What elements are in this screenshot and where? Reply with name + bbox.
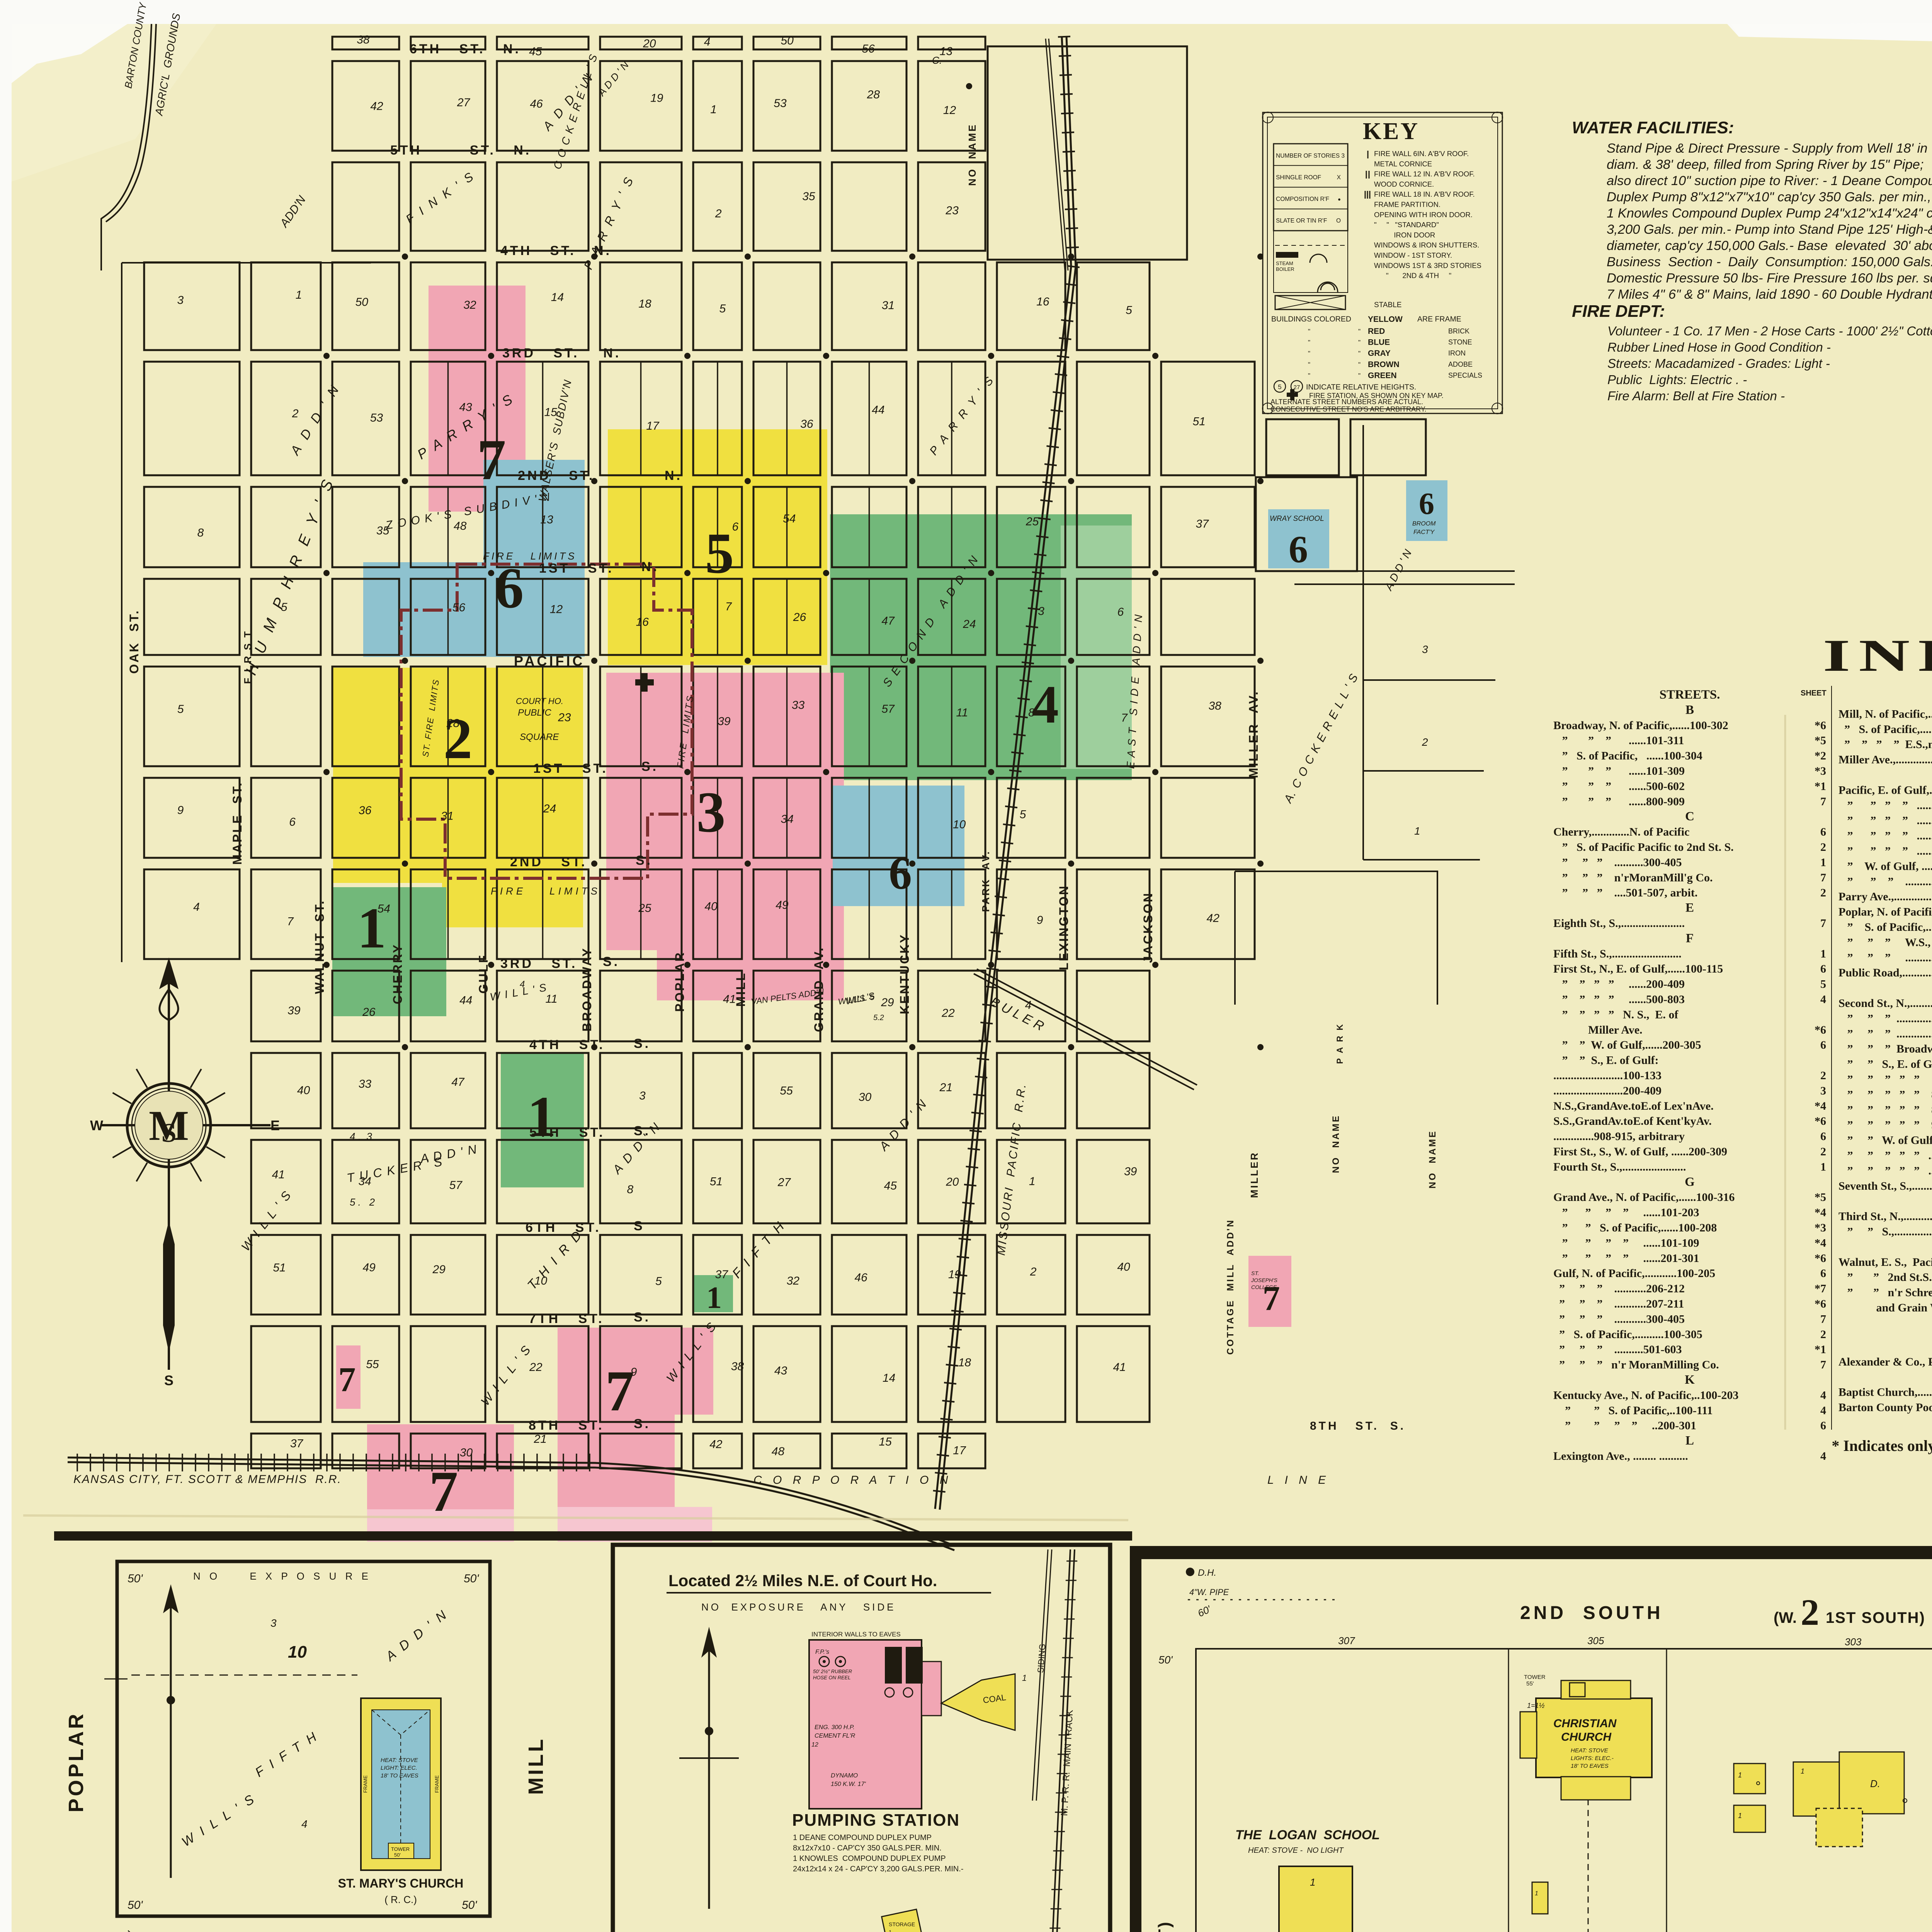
svg-text:6: 6 <box>1820 1419 1826 1432</box>
svg-text:54: 54 <box>783 512 796 525</box>
svg-text:First St., S., W. of Gulf, ...: First St., S., W. of Gulf, ......200-309 <box>1553 1145 1727 1158</box>
svg-text:COLLEGE: COLLEGE <box>1251 1284 1277 1290</box>
svg-text:29: 29 <box>881 996 894 1009</box>
svg-text:": " <box>1358 339 1361 346</box>
svg-text:STEAM: STEAM <box>1276 260 1293 266</box>
svg-text:5: 5 <box>1820 978 1826 991</box>
svg-text:” ” ” ” E.S.,n'rSeven: ” ” ” ” E.S.,n'rSeventhSt.S. <box>1838 738 1932 751</box>
svg-text:LIGHTS: ELEC.-: LIGHTS: ELEC.- <box>1571 1755 1614 1762</box>
svg-text:WALNUT (S. WALNUT): WALNUT (S. WALNUT) <box>1155 1920 1174 1932</box>
svg-text:": " <box>1358 361 1361 368</box>
svg-text:28: 28 <box>867 88 880 101</box>
svg-text:SLATE OR TIN R'F: SLATE OR TIN R'F <box>1276 218 1327 224</box>
svg-text:20: 20 <box>946 1175 959 1188</box>
svg-text:5: 5 <box>1126 304 1132 316</box>
svg-text:SHINGLE ROOF: SHINGLE ROOF <box>1276 174 1321 181</box>
svg-text:27: 27 <box>1294 384 1300 391</box>
svg-text:9: 9 <box>1037 914 1043 927</box>
svg-text:BUILDINGS COLORED: BUILDINGS COLORED <box>1271 315 1351 323</box>
svg-text:9: 9 <box>631 1366 637 1378</box>
svg-text:5: 5 <box>177 703 184 716</box>
svg-text:19: 19 <box>948 1268 961 1281</box>
svg-text:6: 6 <box>495 556 524 620</box>
svg-text:49: 49 <box>362 1261 376 1274</box>
svg-text:1: 1 <box>889 1929 892 1932</box>
svg-text:21: 21 <box>534 1433 547 1446</box>
svg-text:N.: N. <box>665 468 682 483</box>
svg-text:7: 7 <box>1820 917 1826 930</box>
svg-text:3,200 Gals. per min.- Pump int: 3,200 Gals. per min.- Pump into Stand Pi… <box>1607 222 1932 237</box>
svg-text:18' TO EAVES: 18' TO EAVES <box>1571 1763 1609 1769</box>
svg-text:22: 22 <box>529 1361 543 1374</box>
svg-text:” ” ” n'rMoranMill'g: ” ” ” n'rMoranMill'g Co. <box>1553 871 1713 884</box>
svg-text:PARK AV.: PARK AV. <box>980 850 992 912</box>
svg-text:Eighth St., S.,...............: Eighth St., S.,...................... <box>1553 917 1685 930</box>
svg-text:N.: N. <box>641 560 659 574</box>
svg-text:” ” ” ” ” ......2: ” ” ” ” ” ......204-310 <box>1838 1149 1932 1162</box>
svg-text:16: 16 <box>1036 296 1049 308</box>
svg-text:6: 6 <box>889 847 912 899</box>
svg-text:E: E <box>270 1117 280 1133</box>
svg-text:” S. of Pacific,............: ” S. of Pacific,.............100-307 <box>1838 723 1932 736</box>
svg-text:IRON: IRON <box>1448 349 1466 357</box>
svg-text:*6: *6 <box>1815 1115 1826 1128</box>
svg-text:* Indicates only one side of S: * Indicates only one side of Street show… <box>1832 1437 1932 1454</box>
svg-text:Rubber Lined Hose in Good Cond: Rubber Lined Hose in Good Condition - <box>1607 340 1831 354</box>
svg-text:25: 25 <box>1026 515 1039 528</box>
svg-text:NUMBER OF STORIES 3: NUMBER OF STORIES 3 <box>1276 153 1345 159</box>
svg-text:42: 42 <box>370 100 383 112</box>
svg-text:FRAME: FRAME <box>434 1775 440 1793</box>
svg-text:32: 32 <box>787 1274 800 1287</box>
svg-text:” ” ” ” ......: ” ” ” ” ......101-109 <box>1553 1236 1699 1249</box>
svg-text:” ” S., E. of Gulf:: ” ” S., E. of Gulf: <box>1553 1054 1659 1067</box>
svg-text:CHERRY: CHERRY <box>391 943 405 1004</box>
svg-text:": " <box>1358 350 1361 357</box>
svg-text:*5: *5 <box>1815 1191 1826 1204</box>
svg-text:45: 45 <box>529 45 542 58</box>
svg-text:1: 1 <box>1310 1876 1315 1888</box>
svg-text:44: 44 <box>459 994 472 1007</box>
svg-text:44: 44 <box>872 403 884 416</box>
svg-text:Streets: Macadamized - Grades:: Streets: Macadamized - Grades: Light - <box>1607 356 1830 371</box>
svg-text:S: S <box>164 1372 173 1388</box>
svg-text:51: 51 <box>1192 415 1205 428</box>
svg-text:” ” ” ......101-: ” ” ” ......101-309 <box>1553 765 1685 777</box>
svg-text:8: 8 <box>627 1183 634 1196</box>
svg-text:53: 53 <box>370 412 383 424</box>
svg-text:INTERIOR WALLS TO EAVES: INTERIOR WALLS TO EAVES <box>811 1631 901 1638</box>
svg-text:” ” ” ” ......: ” ” ” ” ......101-203 <box>1553 1206 1699 1219</box>
svg-text:4: 4 <box>1820 993 1826 1006</box>
svg-text:E: E <box>1685 901 1694 915</box>
svg-text:COMPOSITION R'F: COMPOSITION R'F <box>1276 196 1329 202</box>
svg-text:KENTUCKY: KENTUCKY <box>898 933 912 1014</box>
svg-text:50': 50' <box>128 1572 143 1585</box>
svg-text:HEAT: STOVE: HEAT: STOVE <box>381 1757 418 1764</box>
svg-text:” S. of Pacific Pacific to 2: ” S. of Pacific Pacific to 2nd St. S. <box>1553 841 1734 854</box>
svg-text:C O R P O R A T I O N: C O R P O R A T I O N <box>753 1474 952 1486</box>
svg-text:7: 7 <box>1121 712 1128 724</box>
svg-text:7: 7 <box>287 915 294 928</box>
svg-text:MILLER AV.: MILLER AV. <box>1247 690 1260 778</box>
svg-text:50': 50' <box>128 1899 143 1912</box>
svg-text:41: 41 <box>723 993 736 1005</box>
svg-text:55': 55' <box>1526 1680 1534 1687</box>
svg-text:STREETS.: STREETS. <box>1660 688 1720 702</box>
svg-text:BROOM: BROOM <box>1412 520 1436 527</box>
svg-text:2: 2 <box>1820 1069 1826 1082</box>
svg-text:26: 26 <box>362 1006 376 1019</box>
svg-text:5 . 2: 5 . 2 <box>350 1196 375 1208</box>
svg-text:11: 11 <box>956 706 968 719</box>
svg-text:HOSE ON REEL: HOSE ON REEL <box>813 1675 851 1680</box>
svg-text:6: 6 <box>1289 528 1308 571</box>
svg-text:38: 38 <box>1208 700 1221 713</box>
svg-text:POPLAR: POPLAR <box>673 951 687 1012</box>
svg-text:" 2ND & 4TH ": " 2ND & 4TH " <box>1374 272 1451 280</box>
svg-text:39: 39 <box>287 1004 301 1017</box>
svg-text:7TH ST.: 7TH ST. <box>529 1311 604 1326</box>
svg-text:First St., N., E. of Gulf,....: First St., N., E. of Gulf,......100-115 <box>1553 963 1723 975</box>
svg-text:1ST ST.: 1ST ST. <box>533 761 608 776</box>
svg-text:Poplar, N. of Pacific,........: Poplar, N. of Pacific,............... <box>1838 906 1932 918</box>
svg-text:4: 4 <box>1820 1404 1826 1417</box>
svg-text:S: S <box>162 1118 177 1148</box>
svg-text:1: 1 <box>1820 1160 1826 1173</box>
svg-text:50': 50' <box>462 1899 477 1912</box>
svg-text:30: 30 <box>460 1446 473 1459</box>
svg-text:1 DEANE COMPOUND DUPLEX PUMP: 1 DEANE COMPOUND DUPLEX PUMP <box>793 1833 932 1842</box>
svg-text:15: 15 <box>544 406 557 418</box>
svg-text:FRAME PARTITION.: FRAME PARTITION. <box>1374 201 1440 209</box>
svg-text:*4: *4 <box>1815 1236 1826 1249</box>
svg-text:26: 26 <box>793 611 806 624</box>
svg-text:” ” W. of Gulf,......200: ” ” W. of Gulf,......200-203 <box>1838 1134 1932 1147</box>
svg-text:BOILER: BOILER <box>1276 266 1294 272</box>
svg-text:1: 1 <box>1820 947 1826 960</box>
svg-text:4: 4 <box>301 1818 308 1830</box>
svg-text:30: 30 <box>859 1091 872 1104</box>
svg-text:23: 23 <box>558 711 571 724</box>
svg-text:50': 50' <box>394 1852 401 1858</box>
svg-text:15: 15 <box>879 1435 892 1448</box>
svg-text:": " <box>1308 350 1310 357</box>
svg-text:D.: D. <box>1870 1778 1880 1789</box>
svg-text:29: 29 <box>432 1263 446 1276</box>
svg-text:” ” ” ” ” 901-90: ” ” ” ” ” 901-909, ” <box>1838 1119 1932 1131</box>
svg-text:6: 6 <box>1820 1039 1826 1051</box>
svg-text:2: 2 <box>1820 1328 1826 1341</box>
svg-text:41: 41 <box>1113 1361 1126 1374</box>
svg-text:31: 31 <box>882 299 895 312</box>
svg-text:35: 35 <box>376 524 389 537</box>
svg-text:” ” ” ” ......: ” ” ” ” ......201-301 <box>1553 1252 1699 1265</box>
svg-text:1 Knowles Compound Duplex Pump: 1 Knowles Compound Duplex Pump 24"x12"x1… <box>1607 206 1932 221</box>
svg-text:1: 1 <box>1738 1771 1742 1779</box>
svg-text:Lexington Ave., ........ .....: Lexington Ave., ........ .......... <box>1553 1450 1688 1463</box>
svg-text:diam. & 38' deep, filled from: diam. & 38' deep, filled from Spring Riv… <box>1607 157 1923 172</box>
svg-text:7: 7 <box>477 428 506 492</box>
svg-text:Business Section - Daily Co: Business Section - Daily Consumption: 15… <box>1607 255 1932 269</box>
svg-text:FIRE WALL 18 IN. A'B'V ROOF.: FIRE WALL 18 IN. A'B'V ROOF. <box>1374 190 1475 198</box>
svg-text:41: 41 <box>272 1168 285 1181</box>
svg-text:S.: S. <box>634 1036 651 1051</box>
svg-text:” ” ” ” ” ......2: ” ” ” ” ” ......205-311 <box>1838 1164 1932 1177</box>
svg-text:OAK ST.: OAK ST. <box>127 609 141 673</box>
svg-text:32: 32 <box>463 299 476 311</box>
svg-text:” ” ” ” ......200-4: ” ” ” ” ......200-409 <box>1553 978 1685 991</box>
svg-text:8: 8 <box>1028 706 1035 719</box>
svg-text:INDICATE RELATIVE HEIGHTS.: INDICATE RELATIVE HEIGHTS. <box>1306 383 1416 391</box>
svg-text:X: X <box>1337 174 1341 181</box>
svg-text:FACT'Y: FACT'Y <box>1413 529 1435 536</box>
svg-text:” ” S., E. of Gulf,.....: ” ” S., E. of Gulf,......100-129 <box>1838 1058 1932 1071</box>
svg-text:51: 51 <box>710 1175 723 1188</box>
svg-text:WATER FACILITIES:: WATER FACILITIES: <box>1572 118 1734 137</box>
svg-text:Kentucky Ave., N. of Pacific,.: Kentucky Ave., N. of Pacific,..100-203 <box>1553 1389 1738 1401</box>
svg-text:": " <box>1308 328 1310 335</box>
svg-text:12: 12 <box>943 104 956 117</box>
svg-text:50: 50 <box>781 34 794 47</box>
svg-text:Located 2½ Miles N.E. of Court: Located 2½ Miles N.E. of Court Ho. <box>668 1571 937 1590</box>
svg-text:3: 3 <box>1820 1084 1826 1097</box>
svg-text:47: 47 <box>451 1076 465 1088</box>
svg-text:14: 14 <box>551 291 564 304</box>
svg-text:TOWER: TOWER <box>1524 1674 1546 1680</box>
svg-text:6: 6 <box>1820 826 1826 838</box>
svg-text:5: 5 <box>705 521 734 585</box>
svg-text:2ND ST.: 2ND ST. <box>518 468 595 483</box>
svg-text:Fifth St., S.,................: Fifth St., S.,........................ <box>1553 947 1682 960</box>
svg-text:6: 6 <box>732 520 739 533</box>
svg-text:150 K.W. 17': 150 K.W. 17' <box>831 1781 866 1787</box>
svg-text:6: 6 <box>1820 963 1826 975</box>
svg-text:GREEN: GREEN <box>1368 371 1397 380</box>
svg-text:” ” 2nd St.S.toS.of 3r: ” ” 2nd St.S.toS.of 3rdSt.S. <box>1838 1271 1932 1284</box>
svg-text:ST.: ST. <box>1251 1270 1259 1276</box>
svg-text:17: 17 <box>646 420 660 432</box>
svg-text:Cherry,.............N. of Paci: Cherry,.............N. of Pacific <box>1553 826 1689 838</box>
svg-text:Mill, N. of Pacific,..........: Mill, N. of Pacific,..............100-31… <box>1838 707 1932 720</box>
svg-text:2ND SOUTH: 2ND SOUTH <box>1520 1603 1663 1623</box>
svg-text:7: 7 <box>1820 1313 1826 1325</box>
svg-text:IRON DOOR: IRON DOOR <box>1374 231 1435 239</box>
svg-text:” S. of Pacific,.........10: ” S. of Pacific,.........100-309 <box>1838 921 1932 934</box>
svg-text:WOOD CORNICE.: WOOD CORNICE. <box>1374 180 1434 188</box>
svg-text:4: 4 <box>1820 1450 1826 1463</box>
svg-text:9: 9 <box>177 804 184 816</box>
svg-text:Second St., N.,...............: Second St., N.,..................100-102 <box>1838 997 1932 1010</box>
svg-text:COURT HO.: COURT HO. <box>516 696 563 706</box>
svg-text:Parry Ave.,...................: Parry Ave.,........................ <box>1838 890 1932 903</box>
svg-text:8TH ST.: 8TH ST. <box>529 1418 604 1433</box>
svg-text:” S. of Pacific,..........10: ” S. of Pacific,..........100-305 <box>1553 1328 1702 1341</box>
svg-text:56: 56 <box>452 601 466 614</box>
svg-text:Barton County Poor Farm,......: Barton County Poor Farm,............ <box>1838 1401 1932 1414</box>
svg-text:SHEET: SHEET <box>1801 689 1827 697</box>
svg-text:14: 14 <box>883 1372 895 1384</box>
svg-text:3RD ST.: 3RD ST. <box>500 956 577 971</box>
svg-text:” ” ” Broadway to Gran: ” ” ” Broadway to Grand Ave. <box>1838 1043 1932 1055</box>
svg-text:43: 43 <box>774 1364 787 1377</box>
svg-text:POPLAR: POPLAR <box>65 1711 88 1812</box>
svg-text:2: 2 <box>1820 1145 1826 1158</box>
svg-text:FIRE LIMITS: FIRE LIMITS <box>491 885 600 897</box>
svg-text:MILLER: MILLER <box>1248 1151 1260 1198</box>
svg-text:10: 10 <box>534 1274 548 1287</box>
svg-text:36: 36 <box>800 418 813 430</box>
svg-text:33: 33 <box>359 1078 372 1090</box>
svg-text:6TH ST. N.: 6TH ST. N. <box>410 42 521 56</box>
svg-text:Volunteer - 1 Co. 17 Men - 2 H: Volunteer - 1 Co. 17 Men - 2 Hose Carts … <box>1607 324 1932 338</box>
svg-text:48: 48 <box>454 520 467 532</box>
svg-text:5: 5 <box>281 601 287 614</box>
svg-text:2: 2 <box>1801 1592 1819 1633</box>
svg-text:” ” ” ” ” 807-81: ” ” ” ” ” 807-812, ” <box>1838 1104 1932 1116</box>
svg-text:4"W. PIPE: 4"W. PIPE <box>1189 1587 1229 1597</box>
svg-text:KANSAS CITY, FT. SCOTT & MEMPH: KANSAS CITY, FT. SCOTT & MEMPHIS R.R. <box>73 1473 342 1486</box>
svg-text:O: O <box>1336 218 1341 224</box>
svg-text:Domestic Pressure 50 lbs- Fire: Domestic Pressure 50 lbs- Fire Pressure … <box>1607 271 1932 286</box>
svg-text:” ” ” ” ” ....: ” ” ” ” ” ......200-409 <box>1838 1073 1932 1086</box>
svg-text:5.2: 5.2 <box>873 1014 884 1022</box>
svg-text:1: 1 <box>1738 1812 1742 1820</box>
svg-text:40: 40 <box>1117 1261 1130 1274</box>
svg-text:*7: *7 <box>1815 1282 1826 1295</box>
svg-text:WINDOWS 1ST & 3RD STORIES: WINDOWS 1ST & 3RD STORIES <box>1374 261 1481 269</box>
svg-text:S.S.,GrandAv.toE.of Kent'kyAv.: S.S.,GrandAv.toE.of Kent'kyAv. <box>1553 1115 1712 1128</box>
svg-text:P A R K: P A R K <box>1335 1023 1345 1064</box>
svg-text:53: 53 <box>774 97 787 110</box>
svg-text:16: 16 <box>636 616 649 629</box>
svg-text:36: 36 <box>359 804 372 817</box>
svg-text:*6: *6 <box>1815 1298 1826 1310</box>
svg-text:10: 10 <box>288 1643 307 1662</box>
svg-text:WINDOWS & IRON SHUTTERS.: WINDOWS & IRON SHUTTERS. <box>1374 241 1479 249</box>
svg-text:": " <box>1308 361 1310 368</box>
svg-text:18: 18 <box>638 298 651 310</box>
svg-text:” ” ” ................: ” ” ” ..................101-107 <box>1838 1012 1932 1025</box>
svg-text:19: 19 <box>650 92 663 105</box>
svg-text:Broadway, N. of Pacific,......: Broadway, N. of Pacific,......100-302 <box>1553 719 1728 732</box>
svg-text:37: 37 <box>290 1437 304 1450</box>
svg-text:WINDOW - 1ST STORY.: WINDOW - 1ST STORY. <box>1374 251 1452 259</box>
svg-text:” ” ” ” ..........: ” ” ” ” ...........500-803 <box>1838 845 1932 857</box>
svg-text:Walnut, E. S., Pacific to Sec: Walnut, E. S., Pacific to Second St. S. <box>1838 1256 1932 1269</box>
svg-text:40: 40 <box>297 1084 310 1097</box>
svg-text:24: 24 <box>543 803 556 815</box>
svg-text:” ” ” W.S., n’r 7th: ” ” ” W.S., n’r 7th St. S. <box>1838 936 1932 949</box>
svg-text:2: 2 <box>1422 736 1428 748</box>
svg-text:27: 27 <box>457 96 471 109</box>
svg-text:ADOBE: ADOBE <box>1448 361 1473 368</box>
svg-text:N.S.,GrandAve.toE.of Lex'nAve.: N.S.,GrandAve.toE.of Lex'nAve. <box>1553 1100 1714 1112</box>
svg-text:307: 307 <box>1338 1635 1355 1646</box>
svg-text:..............908-915, arbitra: ..............908-915, arbitrary <box>1553 1130 1685 1143</box>
svg-text:” ” ” ..........800: ” ” ” ..........800-807 <box>1838 951 1932 964</box>
svg-text:2ND ST.: 2ND ST. <box>510 855 587 869</box>
svg-text:7 Miles 4" 6" & 8" Mains, laid: 7 Miles 4" 6" & 8" Mains, laid 1890 - 60… <box>1607 287 1932 302</box>
svg-text:STORAGE: STORAGE <box>889 1921 915 1927</box>
svg-text:1: 1 <box>527 1085 556 1149</box>
svg-text:........................200-40: ........................200-409 <box>1553 1084 1662 1097</box>
svg-text:27: 27 <box>777 1176 791 1189</box>
svg-text:” ” ” ” N. S., E. of: ” ” ” ” N. S., E. of <box>1553 1008 1679 1021</box>
svg-text:HEAT: STOVE: HEAT: STOVE <box>1571 1747 1609 1754</box>
svg-text:31: 31 <box>441 810 454 823</box>
svg-text:1ST ST.: 1ST ST. <box>539 561 614 576</box>
svg-text:43: 43 <box>459 401 472 414</box>
svg-text:50: 50 <box>355 296 369 308</box>
svg-text:” ” ” ...........300: ” ” ” ...........300-405 <box>1553 1313 1685 1325</box>
svg-text:CONSECUTIVE STREET NO'S ARE AR: CONSECUTIVE STREET NO'S ARE ARBITRARY. <box>1270 405 1427 413</box>
svg-text:13: 13 <box>540 514 553 526</box>
svg-text:” W. of Gulf, ...........20: ” W. of Gulf, ...........200-304 <box>1838 860 1932 872</box>
svg-text:HEAT: STOVE - NO LIGHT: HEAT: STOVE - NO LIGHT <box>1248 1846 1344 1855</box>
svg-text:6TH ST.: 6TH ST. <box>526 1220 601 1235</box>
svg-text:” ” ” ” ..20: ” ” ” ” ..200-301 <box>1553 1419 1696 1432</box>
svg-text:6: 6 <box>1117 605 1124 618</box>
svg-text:SIDING: SIDING <box>1036 1643 1047 1673</box>
svg-text:1: 1 <box>1022 1673 1027 1683</box>
svg-text:17: 17 <box>953 1444 966 1457</box>
svg-text:57: 57 <box>881 703 895 716</box>
svg-text:” ” ” ” ” 801-80: ” ” ” ” ” 801-806, arb. <box>1838 1088 1932 1101</box>
svg-text:WALNUT ST.: WALNUT ST. <box>313 900 327 994</box>
svg-text:INDEX.: INDEX. <box>1823 631 1932 681</box>
svg-text:*5: *5 <box>1815 734 1826 747</box>
svg-text:B: B <box>1685 703 1694 717</box>
svg-text:18: 18 <box>958 1356 971 1369</box>
svg-text:K: K <box>1685 1373 1695 1387</box>
svg-text:MAPLE ST.: MAPLE ST. <box>230 781 244 865</box>
svg-text:18' TO EAVES: 18' TO EAVES <box>381 1772 418 1779</box>
svg-text:S.: S. <box>634 1310 651 1325</box>
svg-text:WRAY SCHOOL: WRAY SCHOOL <box>1270 515 1324 523</box>
svg-text:1: 1 <box>1801 1767 1804 1775</box>
svg-text:Duplex Pump 8"x12"x7"x10" cap': Duplex Pump 8"x12"x7"x10" cap'cy 350 Gal… <box>1607 190 1932 204</box>
svg-text:W: W <box>90 1117 103 1133</box>
svg-text:GRAY: GRAY <box>1368 349 1391 358</box>
svg-text:303: 303 <box>1845 1636 1862 1648</box>
svg-text:RED: RED <box>1368 327 1385 336</box>
svg-text:JOSEPH'S: JOSEPH'S <box>1251 1277 1278 1283</box>
svg-text:3: 3 <box>270 1617 277 1629</box>
svg-text:ALTERNATE STREET NUMBERS ARE A: ALTERNATE STREET NUMBERS ARE ACTUAL. <box>1270 398 1423 406</box>
svg-text:48: 48 <box>772 1445 785 1458</box>
svg-text:42: 42 <box>709 1438 723 1451</box>
svg-text:NO NAME: NO NAME <box>966 123 978 186</box>
svg-text:*1: *1 <box>1815 780 1826 793</box>
svg-text:22: 22 <box>941 1007 955 1020</box>
svg-text:●: ● <box>1338 196 1341 202</box>
svg-text:46: 46 <box>854 1271 867 1284</box>
svg-text:56: 56 <box>862 43 875 55</box>
svg-text:38: 38 <box>731 1360 744 1373</box>
svg-text:34: 34 <box>781 813 793 826</box>
svg-text:8TH ST. S.: 8TH ST. S. <box>1310 1420 1406 1432</box>
svg-text:25: 25 <box>638 902 651 915</box>
svg-text:7: 7 <box>429 1459 458 1524</box>
svg-text:4: 4 <box>520 979 525 990</box>
svg-text:1: 1 <box>296 289 302 301</box>
svg-text:OPENING WITH IRON DOOR.: OPENING WITH IRON DOOR. <box>1374 211 1473 219</box>
svg-text:LIGHT: ELEC.: LIGHT: ELEC. <box>381 1765 417 1771</box>
svg-text:13: 13 <box>940 45 953 58</box>
svg-text:6: 6 <box>289 816 296 828</box>
svg-text:7: 7 <box>1820 1359 1826 1371</box>
